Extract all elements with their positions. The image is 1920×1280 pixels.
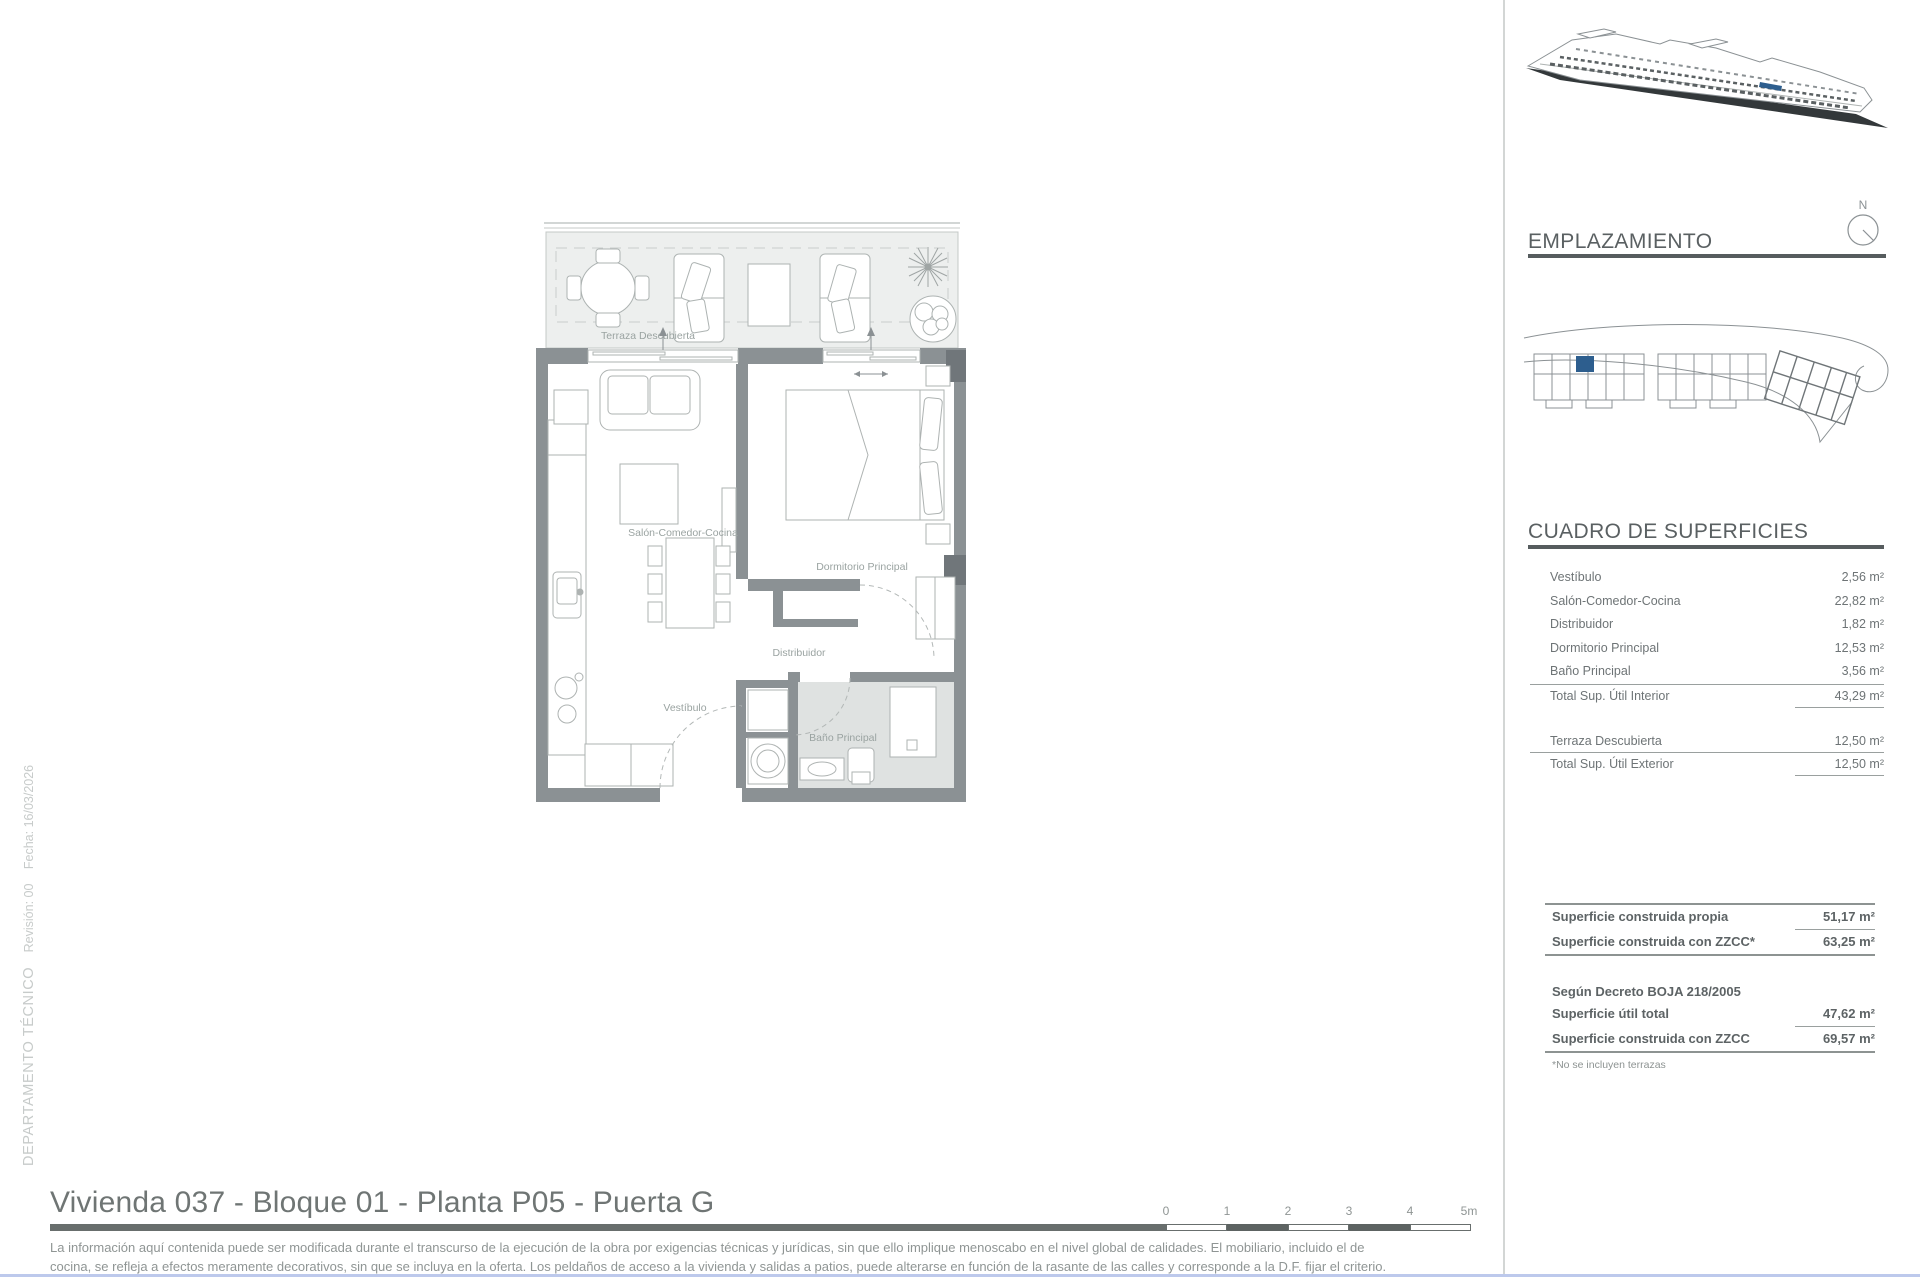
site-boundary-bottom <box>1524 360 1852 442</box>
bedroom-furniture <box>786 366 955 639</box>
side-table <box>554 390 588 424</box>
superficies-heading: CUADRO DE SUPERFICIES <box>1528 520 1808 544</box>
emplazamiento-heading: EMPLAZAMIENTO <box>1528 230 1713 254</box>
scale-label: 4 <box>1398 1204 1422 1218</box>
summary-divider <box>1545 954 1875 956</box>
scale-label: 2 <box>1276 1204 1300 1218</box>
superficies-table: Vestíbulo 2,56 m² Salón-Comedor-Cocina 2… <box>1530 566 1884 776</box>
summary-row: Superficie útil total 47,62 m² <box>1545 1002 1875 1026</box>
table-row: Terraza Descubierta 12,50 m² <box>1530 730 1884 752</box>
table-total-row: Total Sup. Útil Interior 43,29 m² <box>1530 685 1884 707</box>
fridge <box>548 420 586 455</box>
site-building-C <box>1765 351 1860 425</box>
summary-footnote: *No se incluyen terrazas <box>1545 1059 1875 1071</box>
room-label-bano: Baño Principal <box>809 732 877 744</box>
room-label-terraza: Terraza Descubierta <box>601 330 695 342</box>
terrace-side-table <box>748 264 790 326</box>
nightstand <box>926 524 950 544</box>
site-building-B <box>1658 354 1766 408</box>
site-plan <box>1520 310 1892 450</box>
summary-divider <box>1545 1051 1875 1053</box>
room-label-salon: Salón-Comedor-Cocina <box>628 527 738 539</box>
emplazamiento-underline <box>1528 254 1886 258</box>
superficies-underline <box>1528 545 1884 549</box>
table-row: Dormitorio Principal 12,53 m² <box>1530 637 1884 661</box>
chair <box>567 276 581 300</box>
summary-row: Superficie construida propia 51,17 m² <box>1545 905 1875 929</box>
scale-segment <box>1349 1224 1410 1231</box>
unit-location-marker <box>1576 356 1594 372</box>
scale-segment <box>1227 1224 1288 1231</box>
palm-plant-icon <box>908 247 948 287</box>
table-row: Distribuidor 1,82 m² <box>1530 613 1884 637</box>
room-label-distribuidor: Distribuidor <box>772 647 826 659</box>
building-render <box>1520 4 1892 142</box>
table-row: Baño Principal 3,56 m² <box>1530 660 1884 684</box>
scale-segment <box>1410 1224 1471 1231</box>
total-underline <box>1795 707 1884 708</box>
chair <box>596 313 620 327</box>
dining-table <box>666 538 714 628</box>
sidebar-divider <box>1503 0 1505 1274</box>
room-label-dormitorio: Dormitorio Principal <box>816 561 908 573</box>
round-table <box>581 261 635 315</box>
summary-row: Superficie construida con ZZCC* 63,25 m² <box>1545 930 1875 954</box>
page-title: Vivienda 037 - Bloque 01 - Planta P05 - … <box>50 1186 714 1220</box>
tv-unit <box>722 488 736 552</box>
svg-text:N: N <box>1859 198 1868 212</box>
disclaimer-line-1: La información aquí contenida puede ser … <box>50 1238 1495 1257</box>
scale-label: 5m <box>1457 1204 1481 1218</box>
north-compass-icon: N <box>1834 196 1892 252</box>
department-stamp: DEPARTAMENTO TÉCNICO Revisión: 00 Fecha:… <box>20 765 39 1166</box>
shower-drain <box>907 740 917 750</box>
planter-icon <box>910 296 956 342</box>
hall-bench <box>585 744 673 786</box>
plan-sheet: Terraza Descubierta <box>0 0 1920 1280</box>
stamp-department: DEPARTAMENTO TÉCNICO <box>20 967 39 1166</box>
stamp-revision: Revisión: 00 <box>20 884 38 953</box>
table-total-row: Total Sup. Útil Exterior 12,50 m² <box>1530 753 1884 775</box>
chair <box>596 249 620 263</box>
decree-heading-row: Según Decreto BOJA 218/2005 <box>1545 982 1875 1002</box>
bottom-accent-line <box>0 1274 1920 1277</box>
title-underline <box>50 1224 1166 1231</box>
legal-disclaimer: La información aquí contenida puede ser … <box>50 1238 1495 1276</box>
scale-label: 0 <box>1154 1204 1178 1218</box>
cooktop-burner <box>558 705 576 723</box>
room-label-vestibulo: Vestíbulo <box>663 702 706 714</box>
built-surface-summary: Superficie construida propia 51,17 m² Su… <box>1545 903 1875 1071</box>
scale-label: 3 <box>1337 1204 1361 1218</box>
scale-segment <box>1288 1224 1349 1231</box>
scale-segment <box>1166 1224 1227 1231</box>
cooktop-burner <box>555 677 577 699</box>
table-row: Salón-Comedor-Cocina 22,82 m² <box>1530 590 1884 614</box>
summary-row: Superficie construida con ZZCC 69,57 m² <box>1545 1027 1875 1051</box>
stamp-date: Fecha: 16/03/2026 <box>20 765 38 869</box>
nightstand <box>926 366 950 386</box>
table-row: Vestíbulo 2,56 m² <box>1530 566 1884 590</box>
scale-label: 1 <box>1215 1204 1239 1218</box>
rug <box>620 464 678 524</box>
total-underline <box>1795 775 1884 776</box>
kitchen-fixtures <box>548 420 586 755</box>
chair <box>635 276 649 300</box>
floor-plan: Terraza Descubierta <box>536 220 966 820</box>
